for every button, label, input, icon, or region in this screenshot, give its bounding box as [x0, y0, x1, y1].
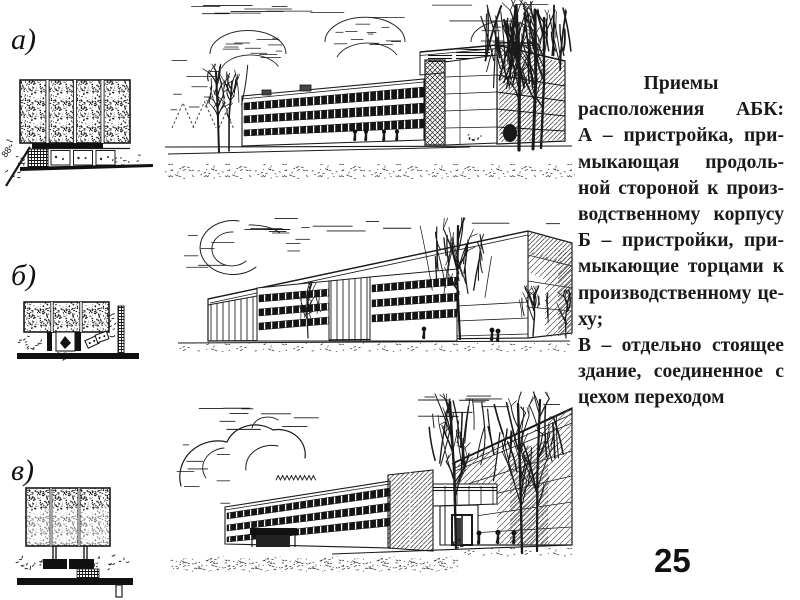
- svg-text:88: 88: [0, 145, 13, 159]
- svg-text:а): а): [11, 23, 36, 56]
- svg-text:в): в): [11, 454, 34, 487]
- svg-text:б): б): [11, 259, 36, 292]
